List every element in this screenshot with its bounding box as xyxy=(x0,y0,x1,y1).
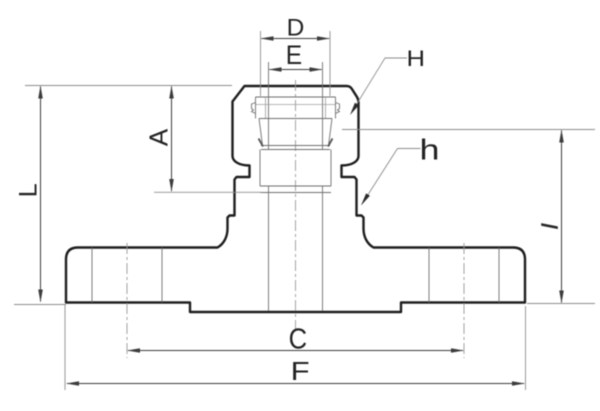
svg-text:D: D xyxy=(287,14,305,41)
svg-text:h: h xyxy=(420,134,440,166)
svg-text:H: H xyxy=(407,46,426,71)
svg-text:L: L xyxy=(15,183,43,197)
svg-text:A: A xyxy=(144,128,174,146)
svg-text:C: C xyxy=(289,324,308,356)
svg-text:E: E xyxy=(286,40,302,70)
svg-text:F: F xyxy=(291,356,310,386)
